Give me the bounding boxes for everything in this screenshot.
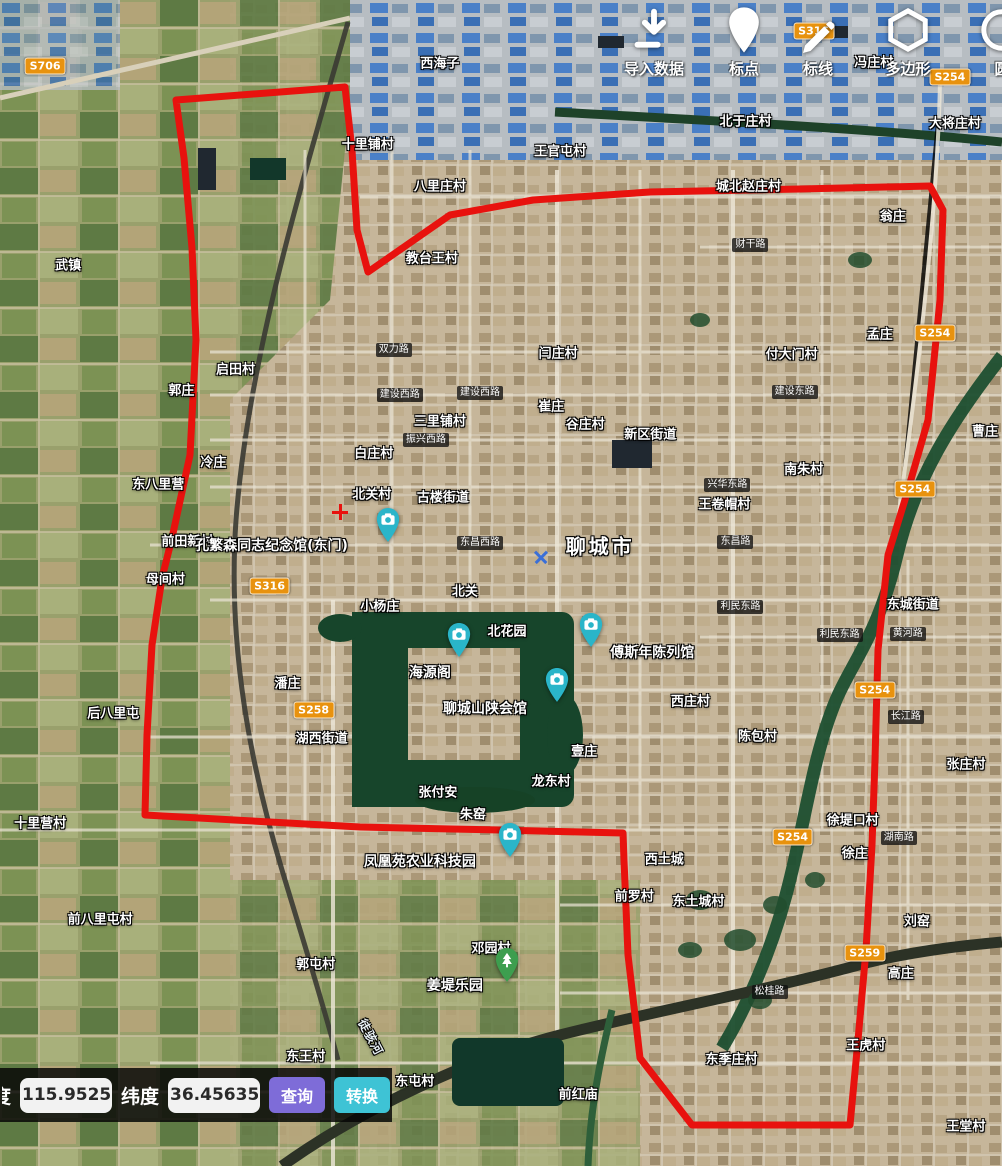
road-shield: S254 bbox=[914, 325, 955, 342]
road-label: 建设西路 bbox=[457, 386, 503, 400]
road-label: 振兴西路 bbox=[403, 433, 449, 447]
map-label: 郭庄 bbox=[168, 380, 194, 399]
map-label: 壹庄 bbox=[571, 740, 597, 759]
map-label: 曹庄 bbox=[972, 421, 998, 440]
map-label: 西庄村 bbox=[671, 690, 710, 709]
map-label: 聊城山陕会馆 bbox=[443, 698, 527, 718]
map-label: 武镇 bbox=[55, 254, 81, 273]
map-label: 付大门村 bbox=[766, 344, 818, 363]
road-shield: S706 bbox=[25, 58, 66, 75]
map-label: 湖西街道 bbox=[296, 727, 348, 746]
map-label: 徒骇河 bbox=[354, 1015, 387, 1057]
map-label: 崔庄 bbox=[538, 395, 564, 414]
road-label: 建设东路 bbox=[772, 385, 818, 399]
convert-button[interactable]: 转换 bbox=[334, 1077, 390, 1113]
latitude-input[interactable] bbox=[168, 1078, 260, 1113]
map-label: 东八里营 bbox=[132, 473, 184, 492]
coordinate-bar: 经度 纬度 查询 转换 bbox=[0, 1068, 392, 1122]
road-label: 东昌路 bbox=[717, 535, 753, 549]
map-label: 王官屯村 bbox=[534, 141, 586, 160]
map-label: 西土城 bbox=[645, 849, 684, 868]
tool-mark-line[interactable]: 标线 bbox=[788, 6, 848, 79]
poi-marker-camera[interactable] bbox=[578, 612, 604, 648]
map-label: 小杨庄 bbox=[360, 596, 399, 615]
poi-marker-park[interactable] bbox=[494, 947, 520, 983]
road-label: 财干路 bbox=[732, 238, 768, 252]
map-application-window: 西海子冯庄村大将庄村北于庄村王官屯村城北赵庄村十里铺村八里庄村教台王村翁庄武镇孟… bbox=[0, 0, 1002, 1166]
map-label: 母间村 bbox=[146, 569, 185, 588]
map-label: 聊城市 bbox=[566, 530, 635, 559]
poi-marker-camera[interactable] bbox=[375, 507, 401, 543]
road-shield: S254 bbox=[772, 829, 813, 846]
map-label: 孟庄 bbox=[867, 324, 893, 343]
map-label: 刘窑 bbox=[904, 910, 930, 929]
hexagon-icon bbox=[862, 6, 954, 58]
map-label: 前八里屯村 bbox=[68, 908, 133, 927]
tool-label: 多边形 bbox=[862, 58, 954, 79]
poi-marker-camera[interactable] bbox=[497, 822, 523, 858]
map-label: 东季庄村 bbox=[705, 1048, 757, 1067]
map-label: 白庄村 bbox=[354, 443, 393, 462]
map-label: 凤凰苑农业科技园 bbox=[364, 851, 476, 871]
road-label: 利民东路 bbox=[817, 628, 863, 642]
road-shield: S254 bbox=[854, 682, 895, 699]
road-shield: S259 bbox=[844, 944, 885, 961]
map-label: 傅斯年陈列馆 bbox=[610, 642, 694, 662]
longitude-input[interactable] bbox=[20, 1078, 112, 1113]
map-label: 王虎村 bbox=[846, 1034, 885, 1053]
map-label: 西海子 bbox=[420, 52, 459, 71]
map-label-layer: 西海子冯庄村大将庄村北于庄村王官屯村城北赵庄村十里铺村八里庄村教台王村翁庄武镇孟… bbox=[0, 0, 1002, 1166]
circle-icon bbox=[972, 6, 1002, 58]
tool-polygon[interactable]: 多边形 bbox=[862, 6, 954, 79]
map-label: 南朱村 bbox=[784, 458, 823, 477]
map-label: 朱窑 bbox=[460, 803, 486, 822]
map-label: 徐堤口村 bbox=[827, 809, 879, 828]
map-label: 东城街道 bbox=[887, 593, 939, 612]
map-label: 陈包村 bbox=[738, 725, 777, 744]
poi-marker-camera[interactable] bbox=[446, 622, 472, 658]
map-label: 潘庄 bbox=[275, 673, 301, 692]
tool-label: 圆 bbox=[972, 58, 1002, 79]
map-label: 启田村 bbox=[216, 359, 255, 378]
map-label: 八里庄村 bbox=[414, 176, 466, 195]
map-label: 新区街道 bbox=[624, 423, 676, 442]
poi-marker-camera[interactable] bbox=[544, 667, 570, 703]
map-label: 闫庄村 bbox=[539, 343, 578, 362]
map-label: 北关村 bbox=[352, 484, 391, 503]
import-icon bbox=[606, 6, 702, 58]
map-label: 十里营村 bbox=[14, 813, 66, 832]
map-label: 前红庙 bbox=[559, 1083, 598, 1102]
map-label: 张付安 bbox=[418, 781, 457, 800]
map-label: 谷庄村 bbox=[566, 414, 605, 433]
map-label: 高庄 bbox=[888, 963, 914, 982]
map-label: 龙东村 bbox=[532, 771, 571, 790]
map-label: 王堂村 bbox=[946, 1116, 985, 1135]
pen-icon bbox=[788, 6, 848, 58]
road-shield: S254 bbox=[894, 480, 935, 497]
map-label: 东土城村 bbox=[672, 891, 724, 910]
map-label: 城北赵庄村 bbox=[716, 176, 781, 195]
road-label: 双力路 bbox=[376, 343, 412, 357]
map-label: 前田新村 bbox=[161, 530, 213, 549]
map-label: 前罗村 bbox=[615, 886, 654, 905]
tool-label: 导入数据 bbox=[606, 58, 702, 79]
map-label: 大将庄村 bbox=[929, 113, 981, 132]
road-label: 兴华东路 bbox=[704, 478, 750, 492]
map-label: 徐庄 bbox=[842, 843, 868, 862]
road-shield: S316 bbox=[249, 578, 290, 595]
road-label: 长江路 bbox=[888, 710, 924, 724]
road-label: 松桂路 bbox=[752, 985, 788, 999]
map-label: 教台王村 bbox=[406, 247, 458, 266]
road-label: 湖南路 bbox=[881, 831, 917, 845]
map-label: 古楼街道 bbox=[417, 486, 469, 505]
road-label: 建设西路 bbox=[377, 388, 423, 402]
map-label: 十里铺村 bbox=[342, 134, 394, 153]
road-label: 利民东路 bbox=[717, 600, 763, 614]
map-label: 冷庄 bbox=[200, 451, 226, 470]
latitude-label: 纬度 bbox=[121, 1082, 159, 1109]
road-label: 东昌西路 bbox=[457, 536, 503, 550]
map-label: 东屯村 bbox=[395, 1070, 434, 1089]
road-label: 黄河路 bbox=[890, 627, 926, 641]
pin-icon bbox=[714, 6, 774, 58]
tool-label: 标点 bbox=[714, 58, 774, 79]
map-label: 北于庄村 bbox=[719, 111, 771, 130]
map-label: 翁庄 bbox=[880, 205, 906, 224]
longitude-label: 经度 bbox=[2, 1082, 11, 1109]
map-label: 北花园 bbox=[487, 620, 526, 639]
map-label: 王卷帽村 bbox=[698, 493, 750, 512]
tool-circle[interactable]: 圆 bbox=[972, 6, 1002, 79]
map-label: 后八里屯 bbox=[87, 703, 139, 722]
map-label: 东王村 bbox=[286, 1046, 325, 1065]
map-label: 三里铺村 bbox=[414, 410, 466, 429]
road-shield: S258 bbox=[293, 702, 334, 719]
map-label: 海源阁 bbox=[409, 662, 451, 682]
map-label: 姜堤乐园 bbox=[427, 975, 483, 995]
map-label: 郭屯村 bbox=[296, 954, 335, 973]
tool-import-data[interactable]: 导入数据 bbox=[606, 6, 702, 79]
map-label: 孔繁森同志纪念馆(东门) bbox=[195, 535, 348, 555]
map-label: 张庄村 bbox=[946, 753, 985, 772]
map-label: 北关 bbox=[452, 580, 478, 599]
query-button[interactable]: 查询 bbox=[269, 1077, 325, 1113]
tool-mark-point[interactable]: 标点 bbox=[714, 6, 774, 79]
